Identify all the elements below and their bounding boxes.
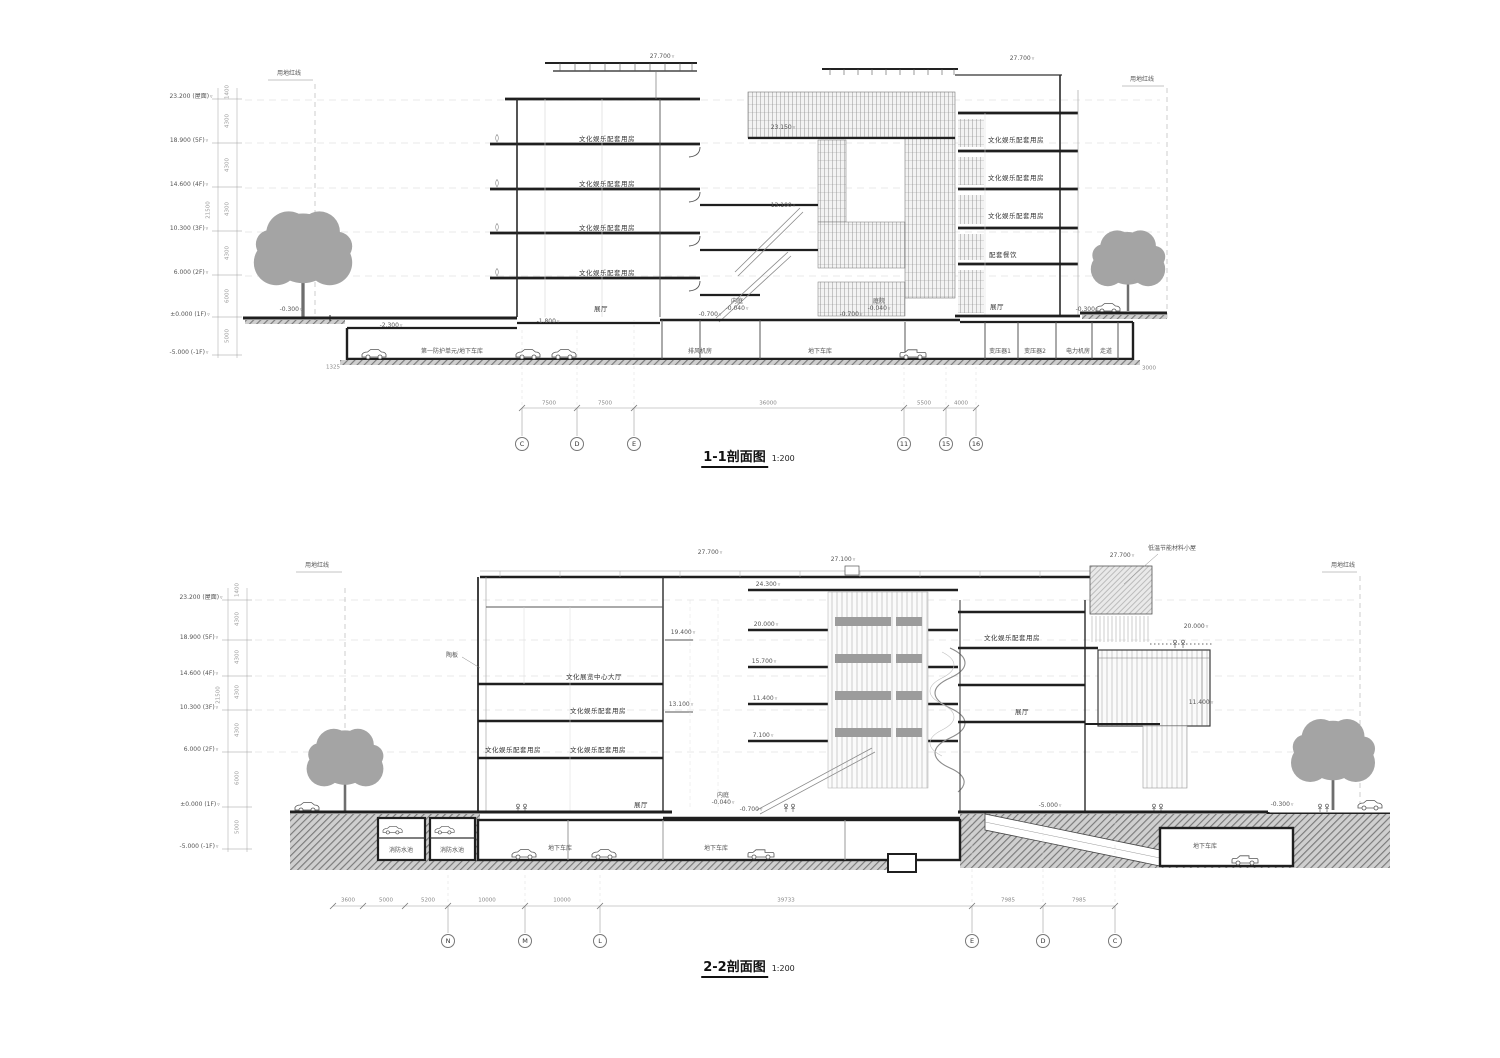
section-title-text: 2-2剖面图 <box>701 956 768 978</box>
section-2-2-drawing <box>222 554 1390 933</box>
drawing-sheet: 用地红线用地红线23.200 (屋面)18.900 (5F)14.600 (4F… <box>0 0 1500 1058</box>
section-title-text: 1-1剖面图 <box>701 446 768 468</box>
section-scale-text: 1:200 <box>772 454 795 463</box>
section-scale-text: 1:200 <box>772 964 795 973</box>
section-2-2-title: 2-2剖面图 1:200 <box>701 956 795 978</box>
section-1-1-title: 1-1剖面图 1:200 <box>701 446 795 468</box>
section-1-1-drawing <box>212 63 1167 436</box>
section-drawings-linework <box>0 0 1500 1058</box>
